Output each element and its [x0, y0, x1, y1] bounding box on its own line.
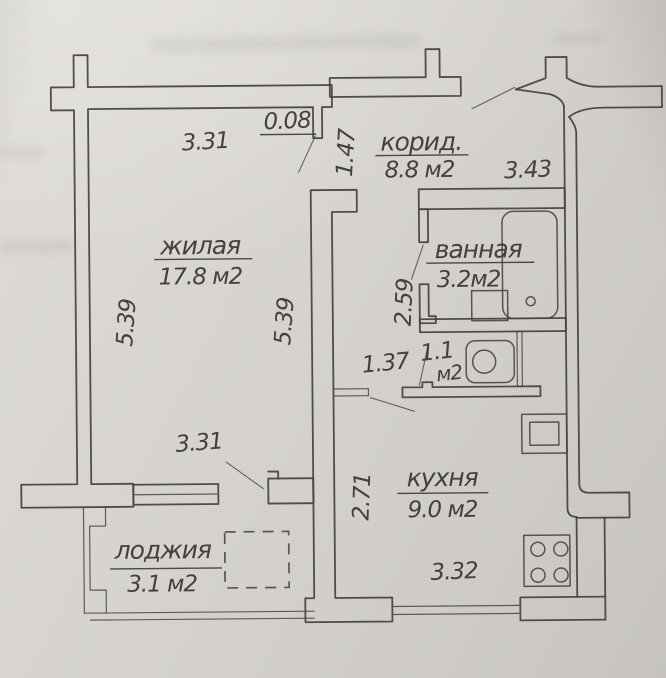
fridge-counter-icon: [522, 414, 567, 453]
room-label-loggia: лоджия: [114, 535, 213, 565]
dim-kitchen-width: 3.32: [430, 558, 479, 586]
room-area-corridor: 8.8 м2: [384, 157, 454, 184]
wall-bathroom-left-upper: [419, 209, 428, 242]
window-kitchen: [392, 605, 520, 614]
window-living-room: [133, 484, 218, 505]
wall-duct-partition: [517, 331, 522, 386]
underline-kitchen: [397, 493, 488, 494]
floor-plan-photo: жилая 17.8 м2 корид. 8.8 м2 ванная 3.2м2…: [0, 0, 666, 678]
room-area-bathroom: 3.2м2: [437, 267, 501, 294]
room-area-kitchen: 9.0 м2: [407, 497, 477, 524]
wall-entrance-block-bottom: [569, 107, 662, 117]
wall-partition-center: [302, 190, 393, 623]
dim-corridor-depth: 2.59: [391, 278, 419, 327]
dim-kitchen-depth: 2.71: [348, 473, 376, 521]
loggia-dashed-cabinet: [225, 531, 289, 588]
wall-kitchen-thin: [333, 389, 368, 396]
dim-living-height-right: 5.39: [270, 297, 300, 346]
room-area-loggia: 3.1 м2: [127, 571, 197, 598]
dim-wc-width: 1.37: [361, 348, 412, 379]
wall-right-outer: [569, 116, 629, 517]
wall-wc-bottom: [402, 381, 540, 397]
bathtub-icon: [502, 211, 558, 318]
wall-corridor-top: [329, 49, 460, 97]
wall-right-inner: [564, 106, 577, 517]
dim-door-opening: 1.47: [332, 127, 361, 177]
stove-icon: [524, 535, 570, 586]
leader-wall-stub: [298, 136, 315, 172]
wall-right-lower-right-edge: [605, 518, 606, 597]
wall-balcony-door-block: [268, 478, 313, 503]
underline-loggia: [110, 568, 222, 569]
wall-bathroom-top: [419, 188, 565, 209]
room-area-wc-unit: м2: [435, 360, 464, 387]
wall-bathroom-left-lower: [420, 284, 436, 323]
wall-entrance-block-inner: [516, 89, 564, 106]
room-label-living: жилая: [159, 231, 241, 261]
room-label-corridor: корид.: [380, 127, 462, 157]
leader-kitchen-door: [371, 397, 415, 411]
dim-wall-stub: 0.08: [263, 107, 312, 135]
room-area-living: 17.8 м2: [159, 264, 243, 291]
wall-entrance-block-top: [516, 56, 662, 89]
leader-bathroom: [411, 245, 423, 279]
floor-plan-drawing: жилая 17.8 м2 корид. 8.8 м2 ванная 3.2м2…: [0, 0, 666, 678]
dim-corridor-width: 3.43: [503, 156, 552, 184]
dim-living-width-bottom: 3.31: [174, 428, 223, 458]
dim-living-width-top: 3.31: [181, 128, 230, 157]
leader-entrance: [472, 87, 515, 108]
leader-balcony-door: [226, 462, 263, 489]
wall-kitchen-bottom-right: [520, 597, 605, 621]
room-label-kitchen: кухня: [407, 463, 479, 493]
wall-right-lower-left-edge: [577, 518, 578, 597]
toilet-icon: [466, 340, 514, 382]
dim-living-height-left: 5.39: [112, 298, 142, 347]
wall-balcony-door-block-tab: [268, 471, 278, 478]
room-label-bathroom: ванная: [435, 234, 523, 264]
